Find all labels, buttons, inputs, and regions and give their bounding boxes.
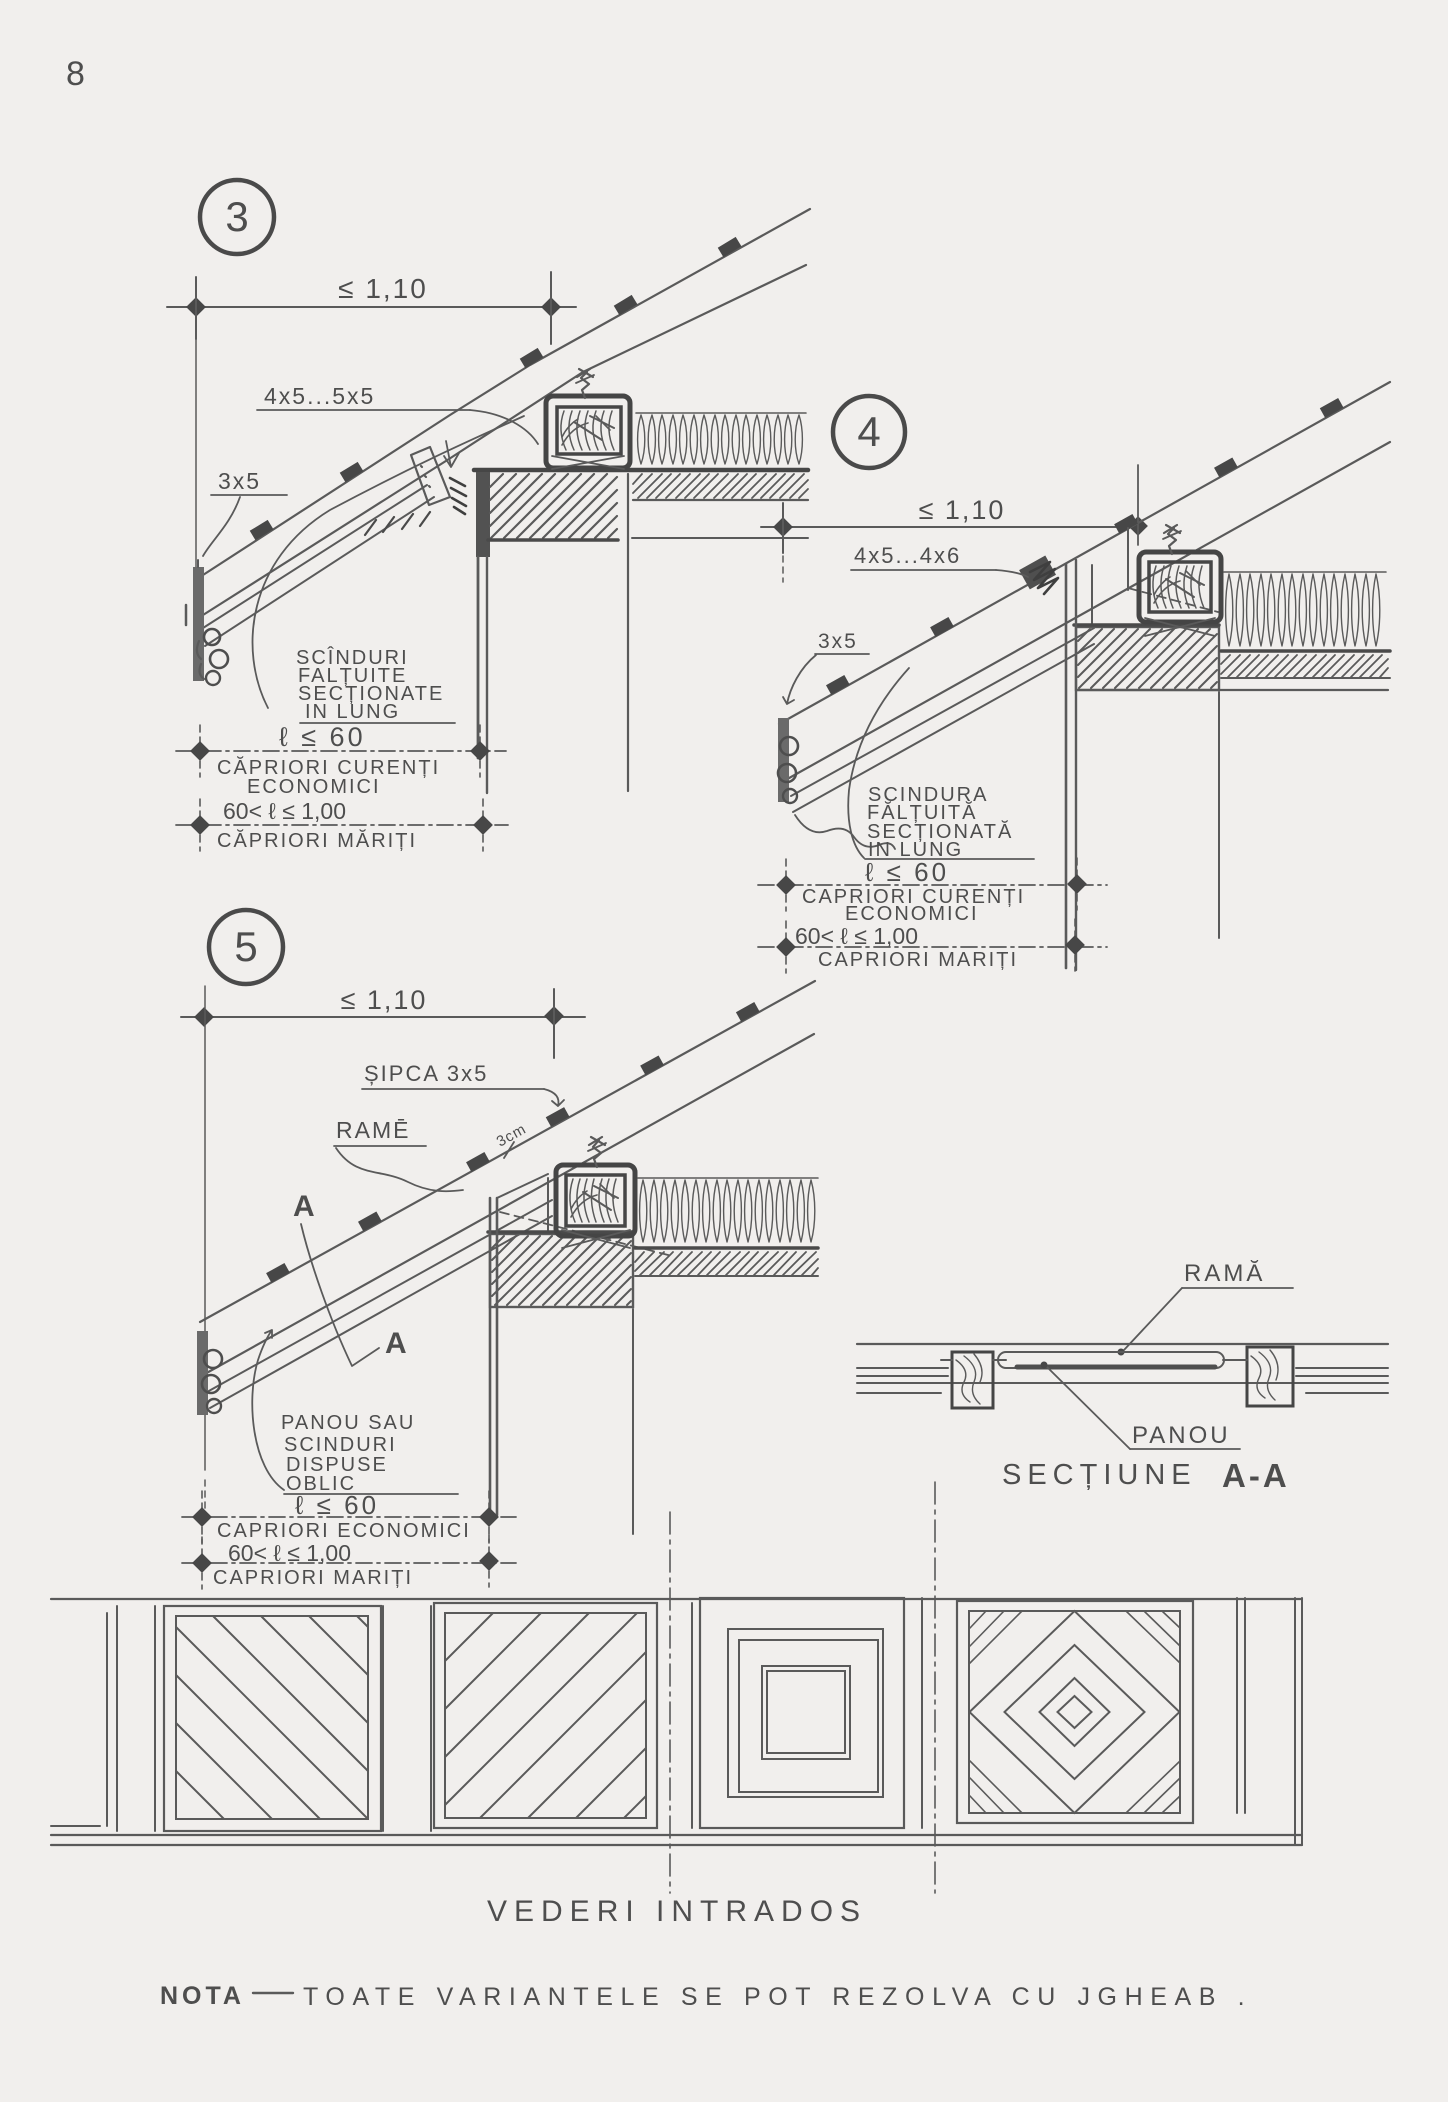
svg-text:IN LUNG: IN LUNG: [305, 701, 400, 723]
svg-text:3x5: 3x5: [818, 630, 858, 653]
svg-text:PANOU: PANOU: [1132, 1422, 1231, 1449]
svg-text:≤ 1,10: ≤ 1,10: [341, 985, 428, 1015]
svg-text:A: A: [385, 1327, 407, 1360]
svg-text:8: 8: [66, 55, 85, 93]
svg-text:NOTA: NOTA: [160, 1982, 245, 2010]
svg-text:ℓ ≤ 60: ℓ ≤ 60: [295, 1490, 379, 1520]
svg-text:RAMĒ: RAMĒ: [336, 1117, 410, 1143]
svg-text:A-A: A-A: [1222, 1457, 1290, 1494]
svg-text:60< ℓ ≤ 1,00: 60< ℓ ≤ 1,00: [795, 923, 918, 949]
svg-text:CAPRIORI MARIȚI: CAPRIORI MARIȚI: [818, 949, 1018, 971]
svg-text:60< ℓ ≤ 1,00: 60< ℓ ≤ 1,00: [223, 798, 346, 824]
svg-text:ℓ ≤ 60: ℓ ≤ 60: [865, 857, 949, 887]
svg-text:ℓ ≤ 60: ℓ ≤ 60: [279, 722, 366, 752]
svg-text:3x5: 3x5: [218, 468, 261, 494]
svg-text:4x5...4x6: 4x5...4x6: [854, 543, 961, 568]
svg-text:≤ 1,10: ≤ 1,10: [919, 495, 1006, 525]
svg-text:CĂPRIORI MĂRIȚI: CĂPRIORI MĂRIȚI: [217, 829, 417, 852]
svg-text:RAMĂ: RAMĂ: [1184, 1260, 1265, 1287]
svg-text:5: 5: [234, 923, 257, 970]
svg-text:CAPRIORI MARIȚI: CAPRIORI MARIȚI: [213, 1567, 413, 1589]
svg-text:ECONOMICI: ECONOMICI: [247, 776, 381, 798]
svg-text:A: A: [293, 1190, 315, 1223]
svg-text:PANOU SAU: PANOU SAU: [281, 1412, 415, 1434]
svg-text:TOATE VARIANTELE SE POT RE: TOATE VARIANTELE SE POT REZOLVA CU JGHEA…: [303, 1983, 1252, 2011]
svg-text:SECȚIUNE: SECȚIUNE: [1002, 1459, 1197, 1491]
svg-text:≤ 1,10: ≤ 1,10: [338, 273, 428, 304]
svg-text:3: 3: [225, 193, 248, 240]
svg-text:4: 4: [857, 408, 880, 455]
svg-text:VEDERI INTRADOS: VEDERI INTRADOS: [487, 1895, 867, 1928]
svg-text:SCINDURI: SCINDURI: [284, 1434, 397, 1456]
svg-text:4x5...5x5: 4x5...5x5: [264, 383, 375, 409]
svg-text:ȘIPCA 3x5: ȘIPCA 3x5: [364, 1061, 488, 1086]
svg-text:CAPRIORI ECONOMICI: CAPRIORI ECONOMICI: [217, 1520, 471, 1542]
svg-text:ECONOMICI: ECONOMICI: [845, 903, 979, 925]
